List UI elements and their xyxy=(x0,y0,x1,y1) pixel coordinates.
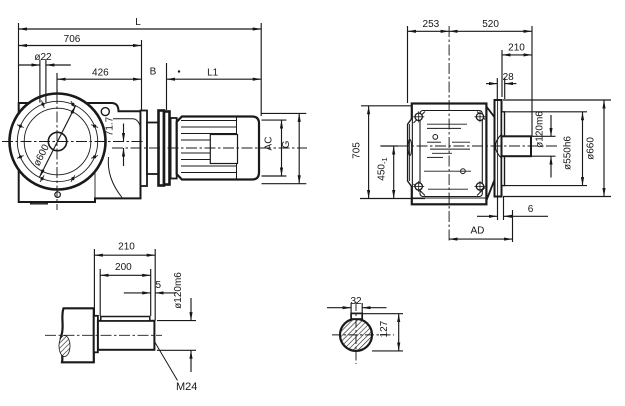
svg-text:200: 200 xyxy=(115,262,132,273)
svg-text:M24: M24 xyxy=(176,381,197,393)
svg-text:28: 28 xyxy=(503,72,515,83)
svg-text:127: 127 xyxy=(379,320,390,337)
svg-text:AD: AD xyxy=(470,226,484,237)
svg-text:ø120m6: ø120m6 xyxy=(173,272,184,309)
svg-text:AC: AC xyxy=(263,137,274,151)
svg-text:ø660: ø660 xyxy=(586,137,597,160)
svg-text:ø120m6: ø120m6 xyxy=(535,111,546,148)
svg-text:705: 705 xyxy=(352,142,363,159)
svg-text:L1: L1 xyxy=(207,68,219,79)
svg-text:ø550h6: ø550h6 xyxy=(563,136,574,170)
svg-text:426: 426 xyxy=(92,68,109,79)
svg-text:6: 6 xyxy=(528,204,534,215)
svg-text:706: 706 xyxy=(64,34,81,45)
svg-text:G: G xyxy=(281,140,292,148)
svg-text:32: 32 xyxy=(350,296,362,307)
svg-text:5: 5 xyxy=(156,280,162,291)
svg-text:520: 520 xyxy=(482,19,499,30)
svg-text:L: L xyxy=(135,17,141,28)
svg-text:B: B xyxy=(150,67,157,78)
svg-text:71.7: 71.7 xyxy=(105,116,116,136)
svg-text:210: 210 xyxy=(508,43,525,54)
svg-text:ø22: ø22 xyxy=(34,52,52,63)
svg-text:210: 210 xyxy=(118,242,135,253)
svg-text:253: 253 xyxy=(423,19,440,30)
